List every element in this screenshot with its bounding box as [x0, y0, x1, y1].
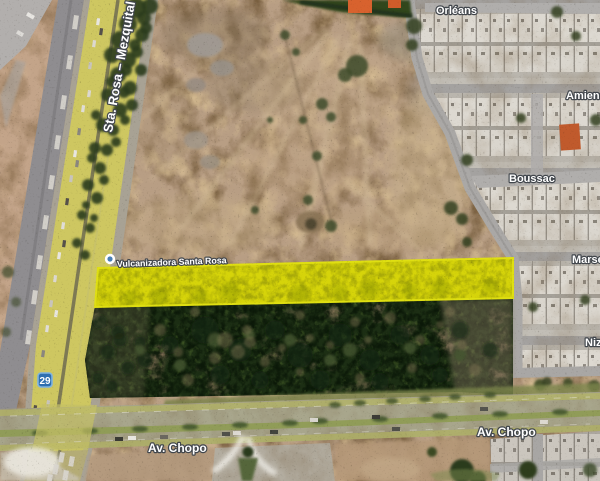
svg-text:29: 29	[39, 376, 51, 387]
svg-text:Amiens: Amiens	[566, 90, 600, 102]
svg-text:Orléans: Orléans	[436, 5, 477, 17]
svg-text:Av. Chopo: Av. Chopo	[148, 441, 207, 455]
svg-text:Niza: Niza	[585, 337, 600, 349]
svg-text:Boussac: Boussac	[509, 173, 555, 185]
svg-text:Marsella: Marsella	[572, 254, 600, 266]
svg-text:Av. Chopo: Av. Chopo	[477, 425, 536, 439]
